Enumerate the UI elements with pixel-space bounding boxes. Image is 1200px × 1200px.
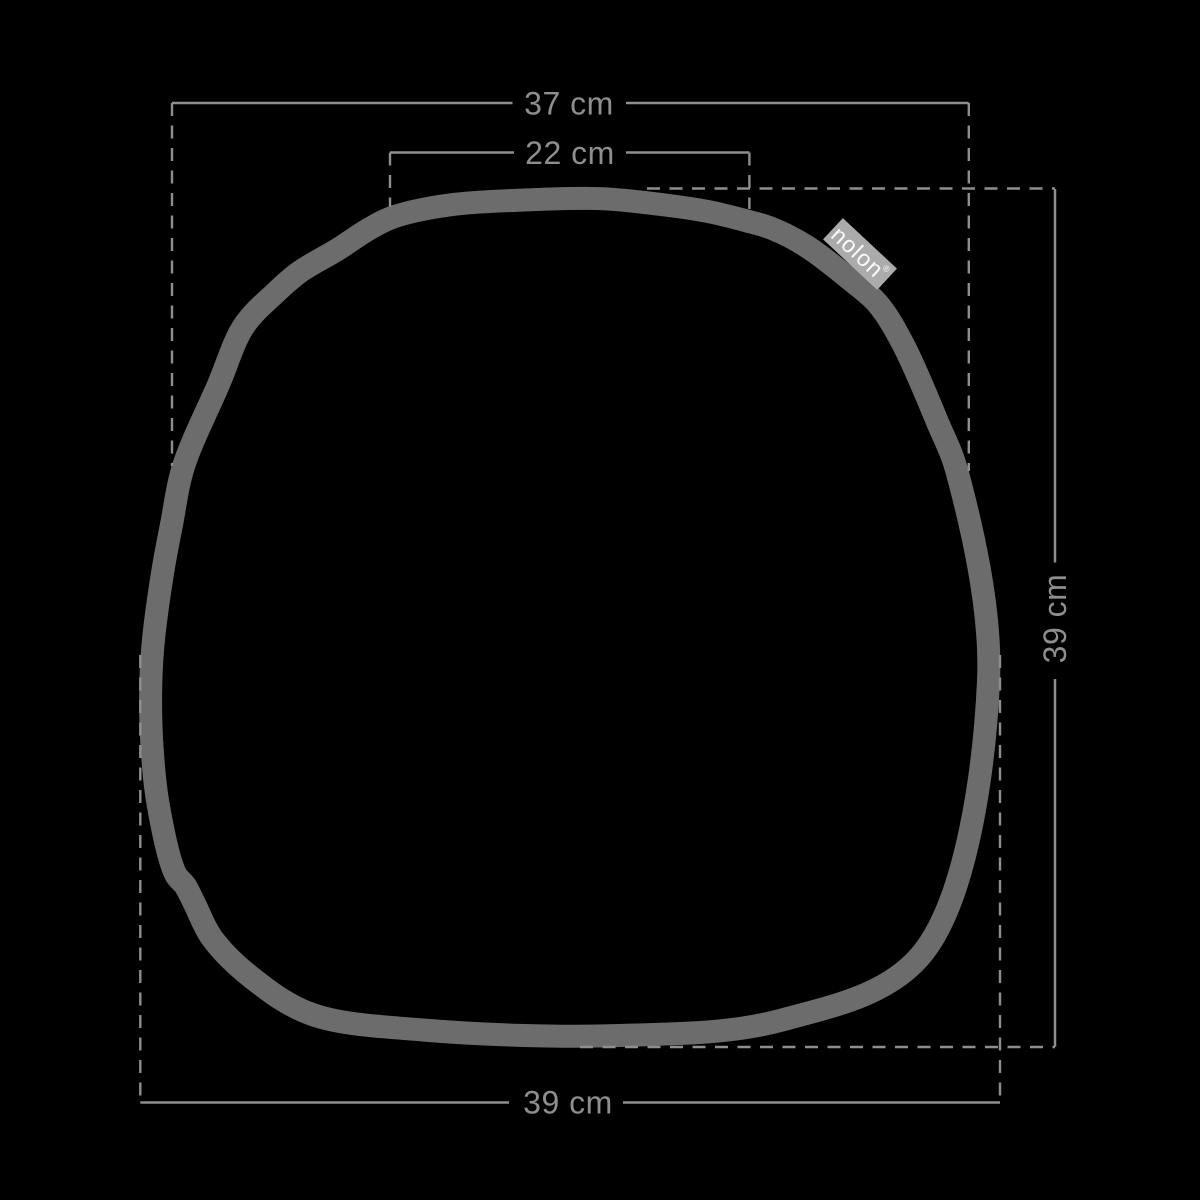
svg-text:37 cm: 37 cm	[524, 85, 614, 121]
svg-text:39 cm: 39 cm	[1037, 574, 1073, 664]
svg-text:39 cm: 39 cm	[523, 1085, 613, 1121]
svg-text:22 cm: 22 cm	[525, 135, 615, 171]
